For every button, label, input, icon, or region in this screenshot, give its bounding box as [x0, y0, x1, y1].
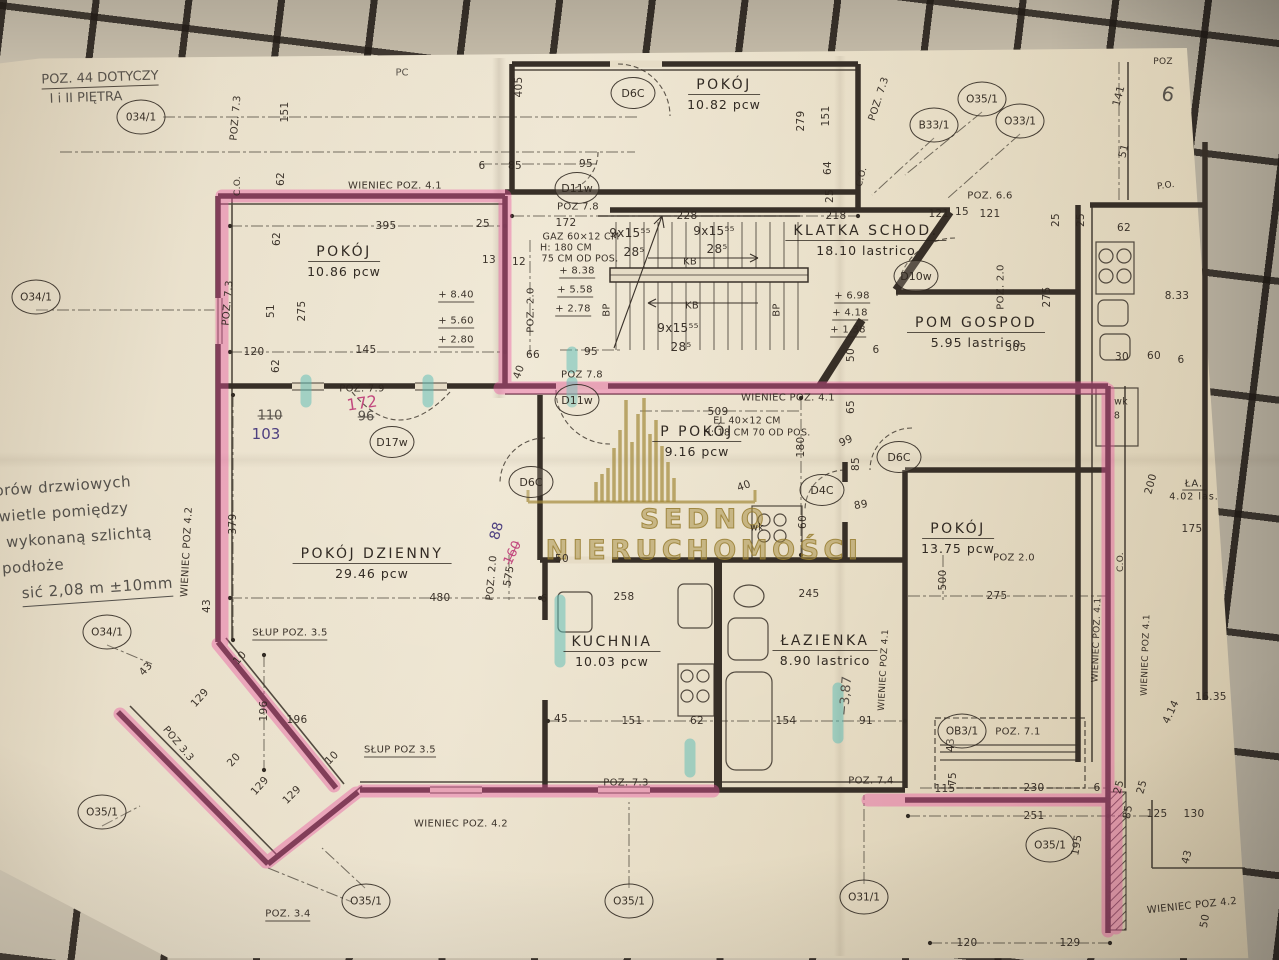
dimension-label: 129 — [249, 774, 272, 798]
dimension-label: 6 — [1094, 782, 1101, 794]
dimension-label: 196 — [258, 701, 270, 722]
reference-symbol: O34/1 — [12, 280, 61, 315]
dimension-label: 51 — [265, 304, 277, 318]
dimension-label: 151 — [820, 106, 832, 127]
annotation-label: WIENIEC POZ. 4.1 — [741, 393, 835, 404]
dimension-label: 6 — [873, 344, 880, 356]
dimension-label: 575 — [501, 565, 516, 588]
dimension-label: 25 — [1050, 213, 1062, 227]
room-area: 8.90 lastrico — [773, 653, 878, 668]
door-symbol: D10w — [894, 260, 939, 292]
dimension-label: 228 — [677, 210, 698, 222]
room-area: 10.03 pcw — [563, 654, 660, 669]
dimension-label: 10 — [323, 749, 341, 767]
annotation-label: + 6.98 — [834, 291, 870, 304]
annotation-label: POZ. 2.0 — [526, 287, 537, 332]
annotation-label: SŁUP POZ 3.5 — [364, 745, 436, 758]
dimension-label: 25 — [1075, 213, 1087, 227]
annotation-label: SŁUP POZ. 3.5 — [252, 628, 327, 641]
room-area: 10.86 pcw — [307, 264, 381, 279]
dimension-label: 40 — [735, 478, 752, 494]
room-name: P POKÓJ — [652, 424, 741, 442]
dimension-label: 151 — [279, 102, 291, 123]
handwritten-mark: 160 — [501, 539, 525, 568]
dimension-label: 196 — [287, 714, 308, 726]
annotation-label: POZ. 7.3 — [221, 280, 236, 326]
dimension-label: 8.33 — [1165, 290, 1190, 302]
dimension-label: 12 — [512, 256, 526, 268]
dimension-label: 62 — [275, 172, 287, 186]
room-label: KUCHNIA10.03 pcw — [563, 631, 660, 669]
dimension-label: 129 — [1060, 937, 1081, 949]
dimension-label: 500 — [937, 570, 949, 591]
dimension-label: 230 — [1024, 782, 1045, 794]
dimension-label: 275 — [296, 301, 308, 322]
dimension-label: 25 — [824, 189, 836, 203]
dimension-label: 6 — [1178, 354, 1185, 366]
room-area: 13.75 pcw — [921, 541, 995, 556]
dimension-label: 60 — [797, 515, 809, 529]
annotation-label: wk — [1114, 397, 1128, 408]
dimension-label: 13 — [482, 254, 496, 266]
reference-symbol: O35/1 — [605, 884, 654, 919]
reference-symbol: O34/1 — [83, 615, 132, 650]
dimension-label: 43 — [1179, 849, 1194, 866]
handwritten-title: POZ. 44 DOTYCZY — [41, 68, 159, 89]
annotation-label: POZ — [1153, 57, 1173, 67]
annotation-label: BP — [772, 303, 783, 317]
door-symbol: D17w — [370, 426, 415, 458]
dimension-label: 25 — [1111, 779, 1126, 796]
dimension-label: 145 — [356, 344, 377, 356]
annotation-label: + 5.60 — [438, 316, 474, 329]
reference-symbol: O35/1 — [342, 884, 391, 919]
dimension-label: 91 — [859, 715, 873, 727]
dimension-label: 130 — [1184, 808, 1205, 820]
handwritten-mark: 103 — [252, 425, 281, 443]
annotation-label: C.O. — [1116, 552, 1126, 572]
annotation-label: wk — [750, 523, 764, 534]
dimension-label: 251 — [1024, 810, 1045, 822]
dimension-label: 141 — [1110, 84, 1127, 107]
dimension-label: 15 — [955, 206, 969, 218]
annotation-label: P.O. — [1157, 180, 1176, 192]
reference-symbol: 034/1 — [117, 100, 166, 135]
dimension-label: 62 — [271, 232, 283, 246]
handwritten-mark: −3,87 — [837, 676, 855, 717]
dimension-label: 89 — [853, 498, 869, 512]
annotation-label: + 8.40 — [438, 290, 474, 303]
door-symbol: D6C — [509, 466, 554, 498]
dimension-label: 85 — [508, 160, 522, 172]
door-symbol: D11w — [555, 172, 600, 204]
dimension-label: 275 — [1041, 287, 1053, 308]
annotation-label: 9x15⁵⁵ — [609, 226, 650, 240]
dimension-label: 120 — [957, 937, 978, 949]
annotation-label: WIENIEC POZ. 4.2 — [414, 819, 508, 830]
room-area: 10.82 pcw — [687, 97, 761, 112]
annotation-label: POZ. 7.3 — [603, 778, 648, 789]
room-area: 9.16 pcw — [652, 444, 741, 459]
handwritten-mark: 6 — [1159, 81, 1176, 107]
dimension-label: 258 — [614, 591, 635, 603]
room-label: POM GOSPOD5.95 lastrico — [907, 312, 1045, 350]
room-name: POKÓJ — [922, 521, 994, 539]
handwritten-mark: 88 — [487, 520, 507, 541]
room-area: 18.10 lastrico — [785, 243, 946, 258]
room-name: ŁAZIENKA — [773, 633, 878, 651]
room-name: POKÓJ — [688, 77, 760, 95]
dimension-label: 43 — [201, 599, 213, 613]
dimension-label: 379 — [227, 514, 239, 535]
annotation-label: POZ. 6.6 — [967, 191, 1012, 202]
annotation-label: POZ. 2.0 — [485, 555, 500, 601]
annotation-label: POZ 7.8 — [561, 370, 603, 381]
dimension-label: 43 — [137, 660, 155, 678]
dimension-label: 60 — [1147, 350, 1161, 362]
reference-symbol: O35/1 — [78, 795, 127, 830]
dimension-label: 120 — [244, 346, 265, 358]
handwritten-mark: 110 — [258, 409, 283, 424]
dimension-label: 40 — [511, 363, 527, 380]
dimension-label: 50 — [1198, 913, 1212, 929]
dimension-label: 175 — [1182, 523, 1203, 535]
dimension-label: 180 — [795, 437, 807, 458]
annotation-label: POZ. 3.4 — [265, 909, 310, 922]
annotation-label: WIENIEC POZ 4.2 — [179, 507, 195, 598]
dimension-label: 45 — [554, 713, 568, 725]
dimension-label: 4.14 — [1160, 698, 1181, 725]
dimension-label: 64 — [822, 161, 834, 175]
floorplan-photo: SEDNO NIERUCHOMOŚCI 40568595172228218279… — [0, 0, 1279, 960]
dimension-label: 95 — [584, 346, 598, 358]
dimension-label: 85 — [850, 457, 862, 471]
room-label: POKÓJ13.75 pcw — [921, 518, 995, 556]
annotation-label: + 2.78 — [555, 304, 591, 317]
dimension-label: 200 — [1142, 472, 1159, 495]
annotation-label: 9x15⁵⁵ — [657, 321, 698, 335]
room-label: ŁA.4.02 las. — [1169, 472, 1219, 503]
annotation-label: WIENIEC POZ. 4.1 — [1091, 597, 1104, 682]
room-name: POKÓJ — [308, 244, 380, 262]
reference-symbol: O33/1 — [996, 104, 1045, 139]
annotation-label: 8 — [1114, 411, 1120, 422]
room-label: ŁAZIENKA8.90 lastrico — [773, 630, 878, 668]
dimension-label: 66 — [526, 349, 540, 361]
annotation-label: 75 CM OD POS. — [542, 254, 619, 265]
dimension-label: 151 — [622, 715, 643, 727]
dimension-label: 30 — [1115, 351, 1129, 363]
handwritten-mark: PC — [395, 68, 408, 79]
room-name: ŁA. — [1182, 479, 1206, 491]
label-layer: 4056859517222821827915164251211512125256… — [0, 0, 1279, 960]
reference-symbol: O35/1 — [1026, 828, 1075, 863]
door-symbol: D6C — [611, 77, 656, 109]
annotation-label: + 1.38 — [830, 325, 866, 338]
room-area: 29.46 pcw — [293, 566, 452, 581]
dimension-label: 405 — [513, 77, 525, 98]
reference-symbol: O31/1 — [840, 880, 889, 915]
room-name: POM GOSPOD — [907, 315, 1045, 333]
dimension-label: 62 — [1117, 222, 1131, 234]
dimension-label: 20 — [225, 751, 243, 769]
dimension-label: 129 — [280, 783, 303, 806]
annotation-label: POZ. 7.1 — [995, 727, 1040, 738]
dimension-label: 50 — [845, 348, 857, 362]
dimension-label: 6 — [479, 160, 486, 172]
annotation-label: BP — [602, 303, 613, 317]
dimension-label: 85 — [1121, 804, 1135, 820]
handwritten-mark: 96 — [358, 410, 375, 425]
reference-symbol: B33/1 — [910, 108, 959, 143]
dimension-label: 395 — [376, 220, 397, 232]
annotation-label: 28⁵ — [707, 242, 728, 256]
annotation-label: C.O. — [233, 176, 243, 196]
dimension-label: 62 — [690, 715, 704, 727]
dimension-label: 75 — [947, 772, 959, 786]
door-symbol: D11w — [555, 384, 600, 416]
annotation-label: WIENIEC POZ 4.1 — [877, 629, 891, 711]
dimension-label: 480 — [430, 592, 451, 604]
room-name: POKÓJ DZIENNY — [293, 546, 452, 564]
annotation-label: 28⁵ — [624, 245, 645, 259]
annotation-label: H: 180 CM — [540, 243, 592, 254]
dimension-label: 25 — [476, 218, 490, 230]
annotation-label: + 2.80 — [438, 335, 474, 348]
annotation-label: POZ 2.0 — [993, 553, 1035, 564]
reference-symbol: OB3/1 — [938, 714, 987, 749]
dimension-label: 51 — [1116, 143, 1131, 160]
room-name: KUCHNIA — [563, 634, 660, 652]
handwritten-margin-note: orów drzwiowychświetle pomiędzywykonaną … — [0, 466, 174, 609]
dimension-label: 154 — [776, 715, 797, 727]
dimension-label: 50 — [555, 553, 569, 565]
annotation-label: POZ 3.3 — [160, 724, 195, 763]
dimension-label: 99 — [837, 433, 855, 450]
dimension-label: 172 — [556, 217, 577, 229]
dimension-label: 16.35 — [1195, 691, 1227, 703]
dimension-label: 129 — [189, 686, 212, 710]
annotation-label: POZ. 2.0 — [996, 264, 1007, 309]
dimension-label: 245 — [799, 588, 820, 600]
handwritten-title: I i II PIĘTRA — [49, 89, 122, 107]
room-label: POKÓJ10.86 pcw — [307, 241, 381, 279]
dimension-label: 62 — [270, 359, 282, 373]
dimension-label: 6 — [541, 593, 548, 605]
dimension-label: 121 — [980, 208, 1001, 220]
dimension-label: 65 — [845, 400, 857, 414]
dimension-label: 10 — [231, 649, 249, 667]
dimension-label: 95 — [579, 158, 593, 170]
annotation-label: + 8.38 — [559, 266, 595, 279]
dimension-label: 275 — [987, 590, 1008, 602]
door-symbol: D6C — [877, 441, 922, 473]
dimension-label: 279 — [795, 111, 807, 132]
dimension-label: 25 — [1134, 779, 1149, 796]
dimension-label: 125 — [1147, 808, 1168, 820]
room-label: POKÓJ10.82 pcw — [687, 74, 761, 112]
dimension-label: 121 — [929, 208, 950, 220]
annotation-label: POZ. 7.3 — [229, 95, 244, 141]
annotation-label: + 4.18 — [832, 308, 868, 321]
room-label: KLATKA SCHOD.18.10 lastrico — [785, 220, 946, 258]
door-symbol: D4C — [800, 474, 845, 506]
room-label: POKÓJ DZIENNY29.46 pcw — [293, 543, 452, 581]
annotation-label: POZ. 7.4 — [848, 776, 893, 787]
annotation-label: WIENIEC POZ. 4.1 — [348, 181, 442, 192]
annotation-label: WIENIEC POZ 4.2 — [1146, 896, 1237, 916]
room-label: P POKÓJ9.16 pcw — [652, 421, 741, 459]
room-area: 5.95 lastrico — [907, 335, 1045, 350]
annotation-label: + 5.58 — [557, 285, 593, 298]
annotation-label: KB — [683, 257, 697, 268]
annotation-label: 28⁵ — [671, 340, 692, 354]
annotation-label: C.O. — [855, 166, 870, 188]
annotation-label: 9x15⁵⁵ — [693, 224, 734, 238]
room-area: 4.02 las. — [1169, 492, 1219, 503]
annotation-label: GAZ 60×12 CM — [543, 232, 620, 243]
annotation-label: KB — [685, 301, 699, 312]
annotation-label: WIENIEC POZ 4.1 — [1140, 614, 1153, 696]
room-name: KLATKA SCHOD. — [785, 223, 946, 241]
annotation-label: POZ. 7.3 — [867, 76, 891, 123]
